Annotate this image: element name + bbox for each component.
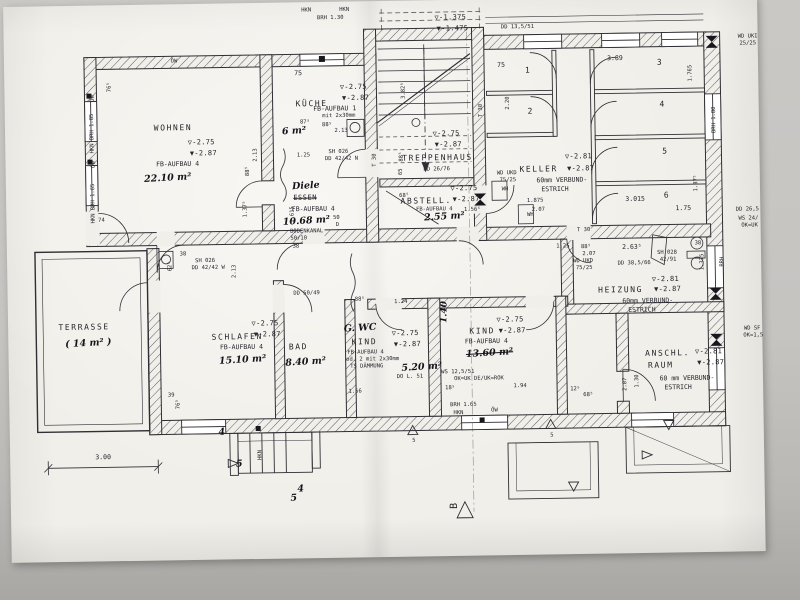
anschl-floor-1: 60 mm VERBUND- (660, 375, 715, 382)
hand-5b: 5 (290, 494, 297, 504)
room-anschl-1: ANSCHL. (645, 349, 690, 358)
gwc-hand: G. WC (344, 323, 377, 334)
dim-anschl-2: 2.07 (623, 378, 629, 391)
dim-keller-7: 3.015 (625, 196, 645, 203)
dim-schlafen-1: 38 (180, 252, 187, 258)
keller-comp-3: 3 (657, 59, 664, 67)
ws-24b: OK=UK (741, 223, 758, 229)
wh-niche-1: WH (502, 187, 509, 193)
ks-level-upper: ▽-2.75 (392, 330, 419, 337)
trepp-level-upper: ▽-2.75 (433, 130, 460, 137)
kl-floor: FB-AUFBAU 4 (465, 338, 508, 345)
dim-keller-1: 75 (497, 62, 505, 69)
dim-300: 3.00 (95, 454, 111, 461)
dd-385: DD 38,5/66 (618, 261, 651, 267)
dim-schlafen-2: 62⁵ (168, 261, 174, 271)
dim-keller-4: 1.765 (688, 65, 694, 82)
dim-anschl-1: 1.30 (635, 374, 641, 387)
wohnen-level-lower: ▼-2.87 (190, 150, 217, 157)
ks-area: 5.20 m² (401, 361, 442, 373)
wohnen-floor: FB-AUFBAU 4 (156, 161, 199, 168)
section-b: B (450, 503, 460, 509)
dim-abstell-l: 68⁵ (399, 194, 409, 200)
anschl-level-lower: ▼-2.87 (697, 359, 724, 366)
dd-265: DD 26,5 (736, 207, 759, 213)
dim-mid-3: 2.07 (582, 252, 595, 258)
hand-4a: 4 (218, 428, 225, 438)
dim-schlafen-3: 2.13 (232, 265, 238, 278)
wd-uki-b: 25/25 (739, 41, 756, 47)
wh-niche-2: WH (527, 213, 534, 219)
entry-dd: DD 13,5/51 (501, 25, 534, 31)
kueche-floor: FB-AUFBAU 1 (313, 105, 356, 112)
trepp-t30: T 30 (479, 104, 485, 117)
keller-comp-4: 4 (659, 101, 666, 109)
dim-west-2: 74 (98, 219, 105, 225)
dim-kueche-5: 75 (294, 70, 302, 77)
dim-bad-2: 1.24 (394, 300, 407, 306)
dim-kind-3: 12⁵ (570, 387, 580, 393)
schlafen-level-upper: ▽-2.75 (251, 320, 278, 327)
trepp-dd: DD 26/76 (423, 167, 450, 173)
kueche-area: 6 m² (282, 126, 307, 137)
brh-180: BRH 1.80 (712, 106, 718, 133)
bodenkanal-2: 50/10 (290, 236, 307, 242)
ks-floor-2: od. 2 mit 2x30mm (346, 357, 399, 363)
abstell-level-upper: ▽-2.75 (450, 185, 477, 192)
wd-sf-b: OK=1,5 (743, 333, 763, 339)
hand-4b: 4 (297, 484, 304, 494)
hkn-left-1: HKN BRH 1.85 (90, 114, 96, 154)
dim-west-1: 76⁵ (108, 82, 114, 92)
wd-ukd-2a: WD UKD (573, 259, 593, 265)
keller-comp-2: 2 (528, 108, 535, 116)
oew-bottom: ÖW (491, 408, 498, 414)
wd-uki-a: WD UKI (738, 34, 758, 40)
tri-5a: 5 (412, 439, 415, 445)
heizung-floor-1: 60mm VERBUND- (622, 297, 673, 304)
room-keller: KELLER (519, 165, 558, 174)
dim-wohnen-door-2: 88⁵ (246, 166, 252, 176)
dim-keller-5: 1.87⁵ (694, 175, 700, 192)
dim-bad-3: 1.56 (348, 390, 361, 396)
room-kind-small: KIND (351, 338, 377, 346)
sh-028a: SH 028 (657, 251, 677, 257)
ks-level-lower: ▼-2.87 (394, 341, 421, 348)
keller-floor-1: 60mm VERBUND- (536, 177, 587, 184)
hkn-top-2: HKN (339, 8, 349, 14)
dim-wohnen-door-1: 2.13 (254, 148, 260, 161)
terrasse-area: ( 14 m² ) (65, 338, 112, 350)
room-treppenhaus: TREPPENHAUS (402, 154, 473, 163)
schlafen-area: 15.10 m² (219, 354, 267, 366)
ws-125b: OK=UK DE/UK=ROK (454, 376, 504, 382)
room-bad: BAD (289, 343, 308, 351)
oew-left-1: ÖW (91, 95, 97, 102)
wd-ukd-1b: 75/25 (500, 178, 517, 184)
kl-level-lower: ▼-2.87 (499, 327, 526, 334)
dim-diele-1: 1.615 (290, 206, 296, 223)
wohnen-level-upper: ▽-2.75 (188, 139, 215, 146)
anschl-level-upper: ▽-2.81 (695, 348, 722, 355)
room-heizung: HEIZUNG (598, 286, 643, 295)
hkn-top-1: HKN (301, 8, 311, 14)
brh-heiz: BRH (720, 257, 726, 267)
dim-diele-2: 38 (293, 245, 300, 251)
dim-keller-6: 1.75 (675, 205, 691, 212)
dim-schlafen-4: 39 (168, 394, 175, 400)
dim-kind-2: 1.94 (513, 384, 526, 390)
dim-trepp-1: 88⁵ (400, 152, 406, 162)
sh-026nb: DD 42/42 N (325, 157, 358, 163)
floorplan-paper: WOHNEN▽-2.75▼-2.87FB-AUFBAU 422.10 m²KÜC… (3, 0, 766, 563)
dim-keller-2: 2.20 (506, 96, 512, 109)
keller-level-upper: ▽-2.81 (565, 153, 592, 160)
dim-trepp-2: 65 (399, 168, 405, 175)
wd-ukd-1a: WD UKD (497, 171, 517, 177)
oew-top: ÖW (171, 59, 178, 65)
abstell-area: 2.55 m² (424, 211, 465, 223)
dim-keller-3: 3.89 (607, 55, 623, 62)
ws-24a: WS 24/ (739, 216, 759, 222)
tri-5b: 5 (550, 434, 553, 440)
keller-comp-5: 5 (662, 148, 669, 156)
heizung-level-upper: ▽-2.81 (652, 276, 679, 283)
keller-comp-6: 6 (664, 191, 671, 199)
dd-5049: DD 50/49 (293, 291, 320, 297)
anschl-floor-2: ESTRICH (664, 384, 692, 391)
dim-heiz-1: 2.63⁵ (622, 244, 642, 251)
dim-mid-2: 88⁵ (581, 245, 591, 251)
wd-sf-a: WD SF (744, 326, 761, 332)
mid-t30: T 30 (577, 228, 590, 234)
dim-trepp-3: 3.82⁵ (402, 82, 408, 99)
plan-labels: WOHNEN▽-2.75▼-2.87FB-AUFBAU 422.10 m²KÜC… (3, 0, 772, 563)
dim-kueche-4: 1.25 (297, 153, 310, 159)
brh-130-top: BRH 1.30 (317, 16, 344, 22)
room-anschl-2: RAUM (648, 361, 674, 369)
oew-left-2: ÖW (92, 161, 98, 168)
hand-140: 1.40 (440, 301, 449, 323)
abstell-dim: 1.56⁵ (464, 208, 481, 214)
diele-old-name: ESSEN (293, 195, 317, 202)
sh-026wb: DD 42/42 W (192, 266, 225, 272)
hkn-bottom: HKN (454, 411, 464, 417)
keller-level-lower: ▼-2.87 (567, 165, 594, 172)
keller-floor-2: ESTRICH (541, 186, 569, 193)
wd-ukd-2b: 75/25 (576, 266, 593, 272)
diele-dim-50: 50 (333, 216, 340, 222)
dim-bad-1: 88⁵ (355, 298, 365, 304)
hkn-left-2: HKN BRH 1.65 (91, 184, 97, 224)
dim-mid-1: 1.25 (556, 244, 569, 250)
room-wohnen: WOHNEN (154, 124, 193, 133)
sh-028b: 42/91 (660, 258, 677, 264)
ks-floor-3: TS DÄMMUNG (350, 364, 383, 370)
dim-heiz-2: 38 (695, 241, 702, 247)
hand-5a: 5 (236, 459, 243, 469)
dim-kind-1: 18⁵ (445, 386, 455, 392)
dim-keller-8: 1.875 (527, 199, 544, 205)
keller-comp-1: 1 (525, 67, 532, 75)
dim-schlafen-5: 76⁵ (176, 399, 182, 409)
sh-026wa: SH 026 (195, 259, 215, 265)
dim-heiz-3: 1.375 (700, 254, 706, 271)
sh-026na: SH 026 (328, 150, 348, 156)
schlafen-level-lower: ▼-2.87 (254, 331, 281, 338)
room-terrasse: TERRASSE (58, 323, 109, 332)
schlafen-floor: FB-AUFBAU 4 (220, 344, 263, 351)
kl-area: 13.60 m² (466, 347, 514, 359)
entry-level-lower: ▼-1.475 (437, 25, 469, 32)
bad-area: 8.40 m² (285, 356, 326, 368)
bodenkanal-1: BODENKANAL (290, 229, 323, 235)
hkn-stair: HKN (258, 450, 264, 460)
heizung-floor-2: ESTRICH (628, 306, 656, 313)
kueche-floor-2: mit 2x30mm (322, 114, 355, 120)
dim-kueche-3: 2.13 (334, 129, 347, 135)
dim-kind-4: 68⁵ (583, 393, 593, 399)
desk-background: WOHNEN▽-2.75▼-2.87FB-AUFBAU 422.10 m²KÜC… (0, 0, 800, 600)
abstell-level-lower: ▼-2.87 (453, 196, 480, 203)
trepp-level-lower: ▼-2.87 (435, 141, 462, 148)
wohnen-area: 22.10 m² (144, 172, 192, 184)
room-kind-large: KIND (469, 327, 495, 335)
heizung-level-lower: ▼-2.87 (654, 286, 681, 293)
kueche-t30: T 30 (373, 153, 379, 166)
diele-floor: FB-AUFBAU 4 (292, 206, 335, 213)
entry-level-upper: ▽-1.375 (434, 14, 466, 21)
kl-level-upper: ▽-2.75 (496, 316, 523, 323)
dim-kueche-1: 87⁵ (300, 120, 310, 126)
room-diele: Diele (292, 181, 320, 192)
diele-dim-d: D (336, 223, 339, 229)
kueche-level-lower: ▼-2.87 (342, 95, 369, 102)
ks-dol: DO L. 51 (397, 375, 424, 381)
kueche-level-upper: ▽-2.75 (340, 84, 367, 91)
dim-wohnen-door-3: 1.37⁵ (243, 201, 249, 218)
dim-kueche-2: 88⁵ (322, 123, 332, 129)
brh-165-bottom: BRH 1.65 (450, 403, 477, 409)
